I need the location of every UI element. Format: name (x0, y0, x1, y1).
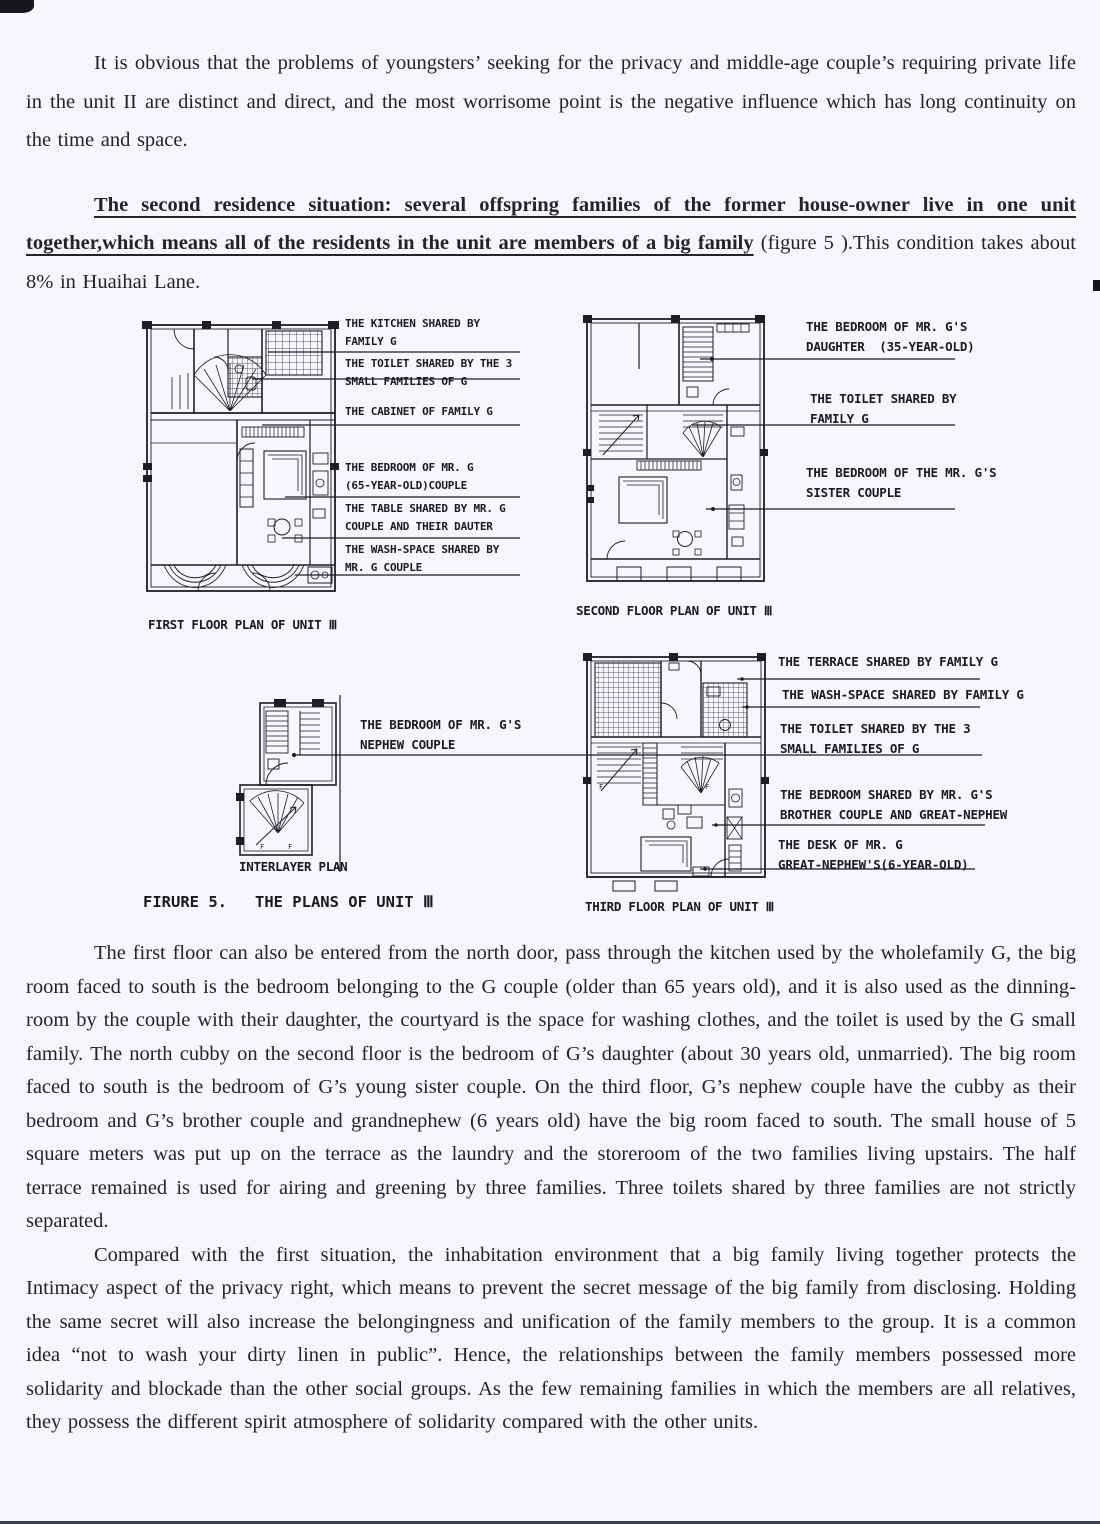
scanned-document-page: It is obvious that the problems of young… (0, 0, 1100, 1524)
plan-label: THE BEDROOM OF MR. G'S NEPHEW COUPLE (360, 715, 612, 755)
first-floor-caption: FIRST FLOOR PLAN OF UNIT Ⅲ (148, 617, 337, 632)
svg-text:F: F (288, 843, 292, 851)
third-floor-plan-drawing: FF (583, 647, 770, 893)
svg-text:F: F (599, 783, 603, 791)
plan-label: THE KITCHEN SHARED BY FAMILY G (345, 315, 521, 351)
plan-label: THE BEDROOM SHARED BY MR. G'S BROTHER CO… (780, 785, 1032, 825)
plan-label: THE TOILET SHARED BY THE 3 SMALL FAMILIE… (345, 355, 521, 391)
interlayer-caption: INTERLAYER PLAN (239, 859, 347, 874)
plan-label: THE WASH-SPACE SHARED BY FAMILY G (782, 685, 1034, 705)
paragraph-description: The first floor can also be entered from… (26, 937, 1076, 1239)
plan-label: THE TERRACE SHARED BY FAMILY G (778, 652, 1030, 672)
section-heading: The second residence situation: several … (26, 186, 1076, 302)
svg-text:F: F (260, 843, 264, 851)
scan-edge-artifact (1093, 280, 1100, 291)
svg-text:F: F (705, 783, 709, 791)
plan-label: THE BEDROOM OF MR. G (65-YEAR-OLD)COUPLE (345, 459, 521, 495)
paragraph-intro: It is obvious that the problems of young… (26, 0, 1076, 160)
interlayer-plan-drawing: FF (236, 697, 344, 863)
plan-label: THE BEDROOM OF MR. G'S DAUGHTER (35-YEAR… (806, 317, 1058, 357)
plan-label: THE DESK OF MR. G GREAT-NEPHEW'S(6-YEAR-… (778, 835, 1030, 875)
plan-label: THE TABLE SHARED BY MR. G COUPLE AND THE… (345, 500, 521, 536)
scan-corner-artifact (0, 0, 34, 13)
figure-5-plans: FF (0, 307, 1100, 937)
plan-label: THE TOILET SHARED BY FAMILY G (810, 389, 1062, 429)
plan-label: THE BEDROOM OF THE MR. G'S SISTER COUPLE (806, 463, 1058, 503)
second-floor-plan-drawing (583, 309, 768, 597)
second-floor-caption: SECOND FLOOR PLAN OF UNIT Ⅲ (576, 603, 772, 618)
paragraph-comparison: Compared with the first situation, the i… (26, 1239, 1076, 1440)
plan-label: THE CABINET OF FAMILY G (345, 403, 521, 421)
figure-caption: FIRURE 5. THE PLANS OF UNIT Ⅲ (143, 893, 434, 911)
plan-label: THE WASH-SPACE SHARED BY MR. G COUPLE (345, 541, 521, 577)
first-floor-plan-drawing (142, 313, 344, 605)
third-floor-caption: THIRD FLOOR PLAN OF UNIT Ⅲ (585, 899, 774, 914)
plan-label: THE TOILET SHARED BY THE 3 SMALL FAMILIE… (780, 719, 1032, 759)
